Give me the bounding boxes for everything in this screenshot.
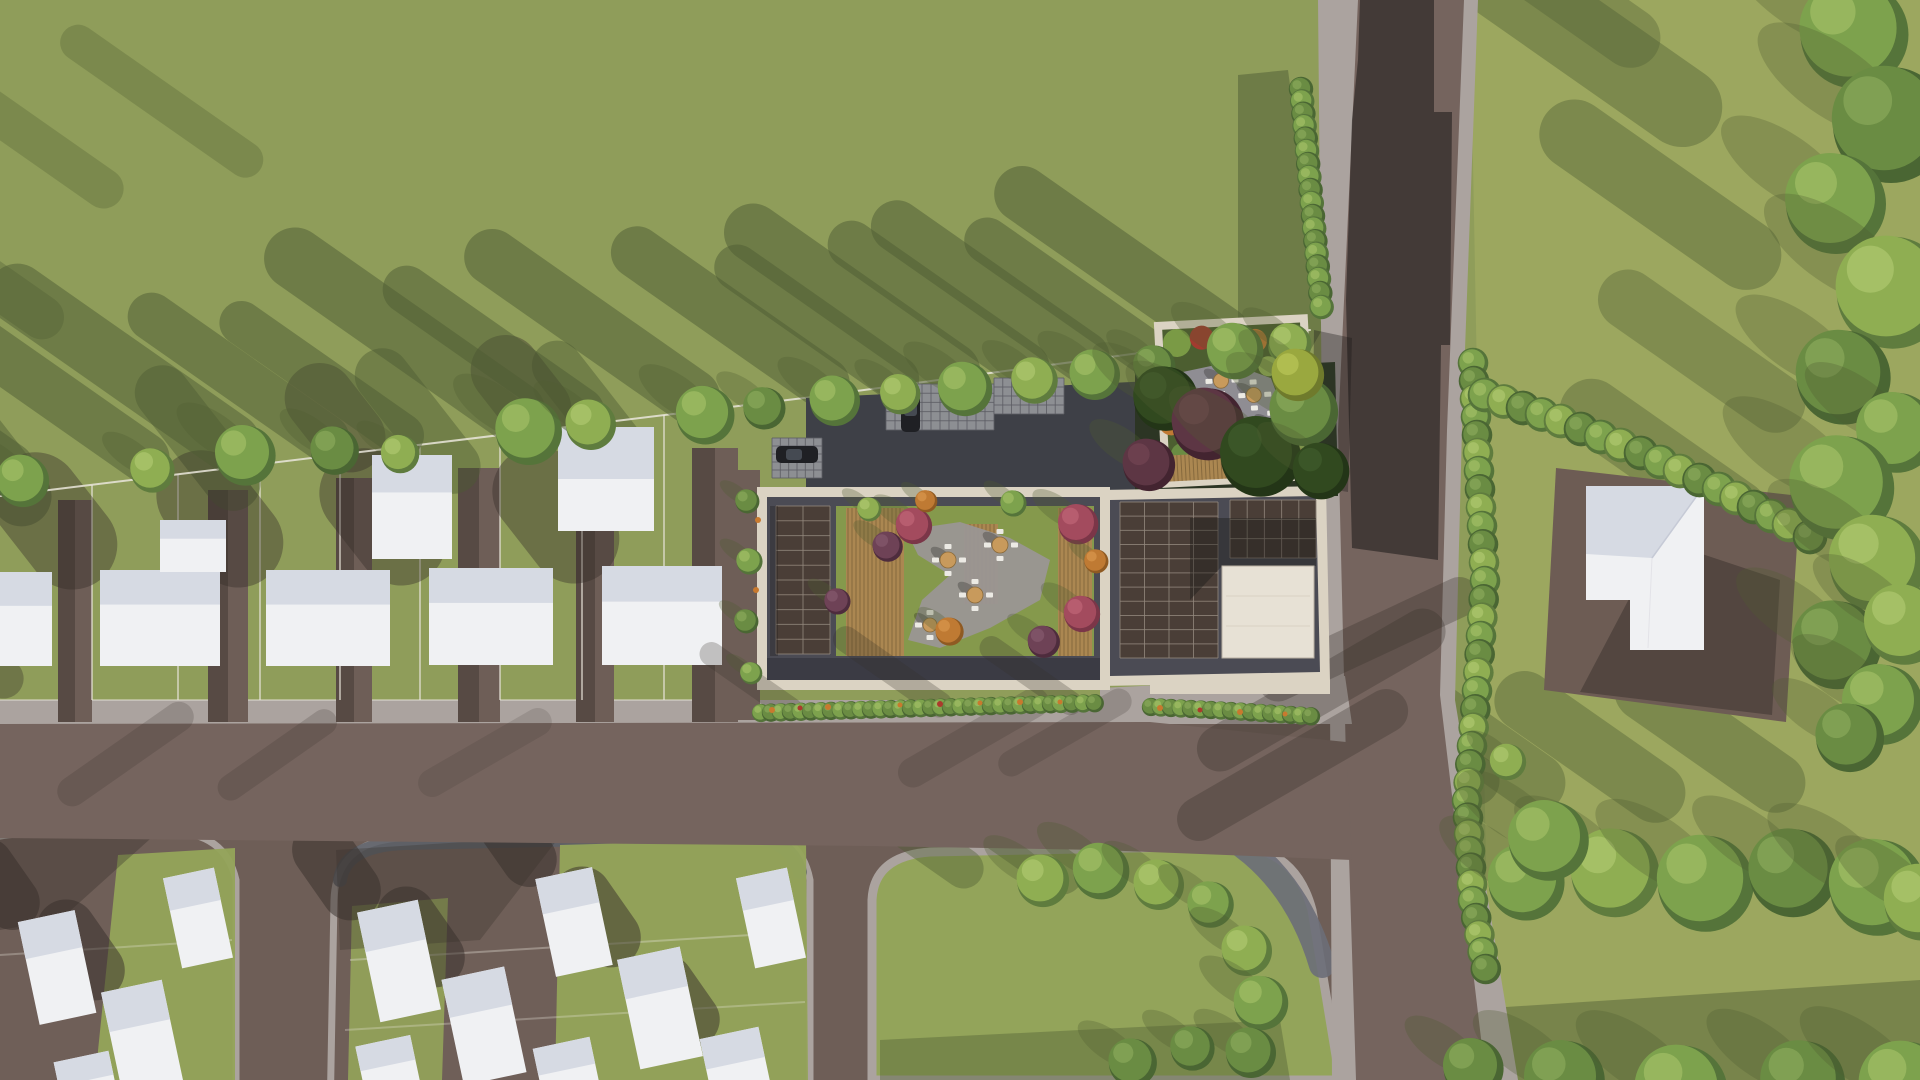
trees-tree — [1532, 1047, 1566, 1080]
trees-tree — [221, 430, 246, 455]
trees-tree — [1843, 76, 1892, 125]
trees-tree — [1800, 445, 1844, 489]
community-building-complex-circle — [798, 706, 803, 711]
trees-tree — [1239, 981, 1262, 1004]
trees-tree — [1175, 1030, 1193, 1048]
trees-tree — [1022, 859, 1044, 881]
trees-tree — [135, 452, 153, 470]
trees-tree — [943, 367, 966, 390]
trees-tree — [1016, 361, 1035, 380]
trees-tree — [1227, 930, 1248, 951]
community-building-complex-circle — [898, 703, 903, 708]
trees-tree — [860, 499, 870, 509]
trees-tree — [747, 391, 765, 409]
trees-tree — [1666, 843, 1706, 883]
trees-tree — [1075, 354, 1096, 375]
trees-tree — [315, 431, 335, 451]
trees-tree — [938, 620, 950, 632]
trees-tree — [1277, 353, 1299, 375]
house-row-plots-house — [100, 570, 220, 605]
trees-tree — [1128, 443, 1150, 465]
trees-circle — [755, 517, 761, 523]
trees-tree — [1493, 747, 1508, 762]
community-building-complex-circle — [1237, 709, 1243, 715]
trees-tree — [1192, 885, 1211, 904]
trees-tree — [1139, 864, 1160, 885]
community-building-complex-table — [940, 552, 956, 568]
community-building-complex-rect — [1222, 566, 1314, 658]
trees-tree — [1822, 710, 1851, 739]
community-building-complex-circle — [1283, 712, 1288, 717]
community-building-complex-hedge — [1088, 696, 1095, 703]
trees-tree — [1864, 399, 1898, 433]
trees-tree — [737, 611, 747, 621]
trees-tree — [1872, 591, 1906, 625]
house-row-plots-house — [160, 520, 226, 539]
community-building-complex-circle — [1157, 705, 1163, 711]
trees-tree — [1087, 551, 1097, 561]
trees-tree — [884, 378, 901, 395]
trees-tree — [742, 664, 751, 673]
trees-tree — [1228, 423, 1262, 457]
trees-tree — [739, 551, 750, 562]
community-building-complex-rect — [770, 506, 778, 656]
trees-tree — [738, 491, 748, 501]
trees-tree — [1231, 1032, 1252, 1053]
trees-tree — [1298, 448, 1322, 472]
trees-tree — [1516, 807, 1550, 841]
community-building-complex-circle — [769, 707, 775, 713]
community-building-complex-circle — [1198, 708, 1203, 713]
trees-tree — [1847, 246, 1894, 293]
trees-tree — [1850, 671, 1884, 705]
trees-tree — [571, 404, 592, 425]
trees-tree — [1062, 508, 1079, 525]
trees-tree — [815, 380, 836, 401]
aerial-render-canvas — [0, 0, 1920, 1080]
community-building-complex-rect — [786, 449, 802, 460]
trees-tree — [1449, 1043, 1474, 1068]
house-row-plots-house — [429, 568, 553, 603]
community-building-complex-circle — [1058, 700, 1063, 705]
trees-tree — [1113, 1043, 1133, 1063]
trees-tree — [1067, 599, 1082, 614]
trees-tree — [385, 438, 401, 454]
trees-tree — [1212, 328, 1236, 352]
community-building-complex-circle — [825, 704, 831, 710]
site-plan-aerial-render — [0, 0, 1920, 1080]
trees-tree — [1003, 493, 1014, 504]
house-row-plots-house — [602, 566, 722, 602]
trees-tree — [876, 534, 889, 547]
trees-tree — [917, 492, 926, 501]
trees-tree — [2, 459, 24, 481]
community-building-complex-hedge — [1304, 709, 1311, 716]
trees-circle — [753, 587, 759, 593]
trees-tree — [502, 404, 530, 432]
hedges-hedge — [1475, 958, 1486, 969]
trees-tree — [1078, 848, 1102, 872]
community-building-complex-table — [992, 537, 1008, 553]
trees-tree — [1031, 628, 1044, 641]
house-row-plots-house — [0, 572, 52, 606]
hedges-hedge — [1313, 298, 1322, 307]
community-building-complex-rect — [1150, 680, 1330, 694]
house-row-plots-house — [266, 570, 390, 605]
community-building-complex-circle — [978, 701, 983, 706]
community-building-complex-table — [967, 587, 983, 603]
trees-tree — [682, 391, 706, 415]
community-building-complex-circle — [1017, 699, 1023, 705]
roads-poly — [0, 722, 1352, 860]
trees-tree — [899, 511, 914, 526]
trees-tree — [827, 591, 838, 602]
community-building-complex-circle — [937, 701, 943, 707]
